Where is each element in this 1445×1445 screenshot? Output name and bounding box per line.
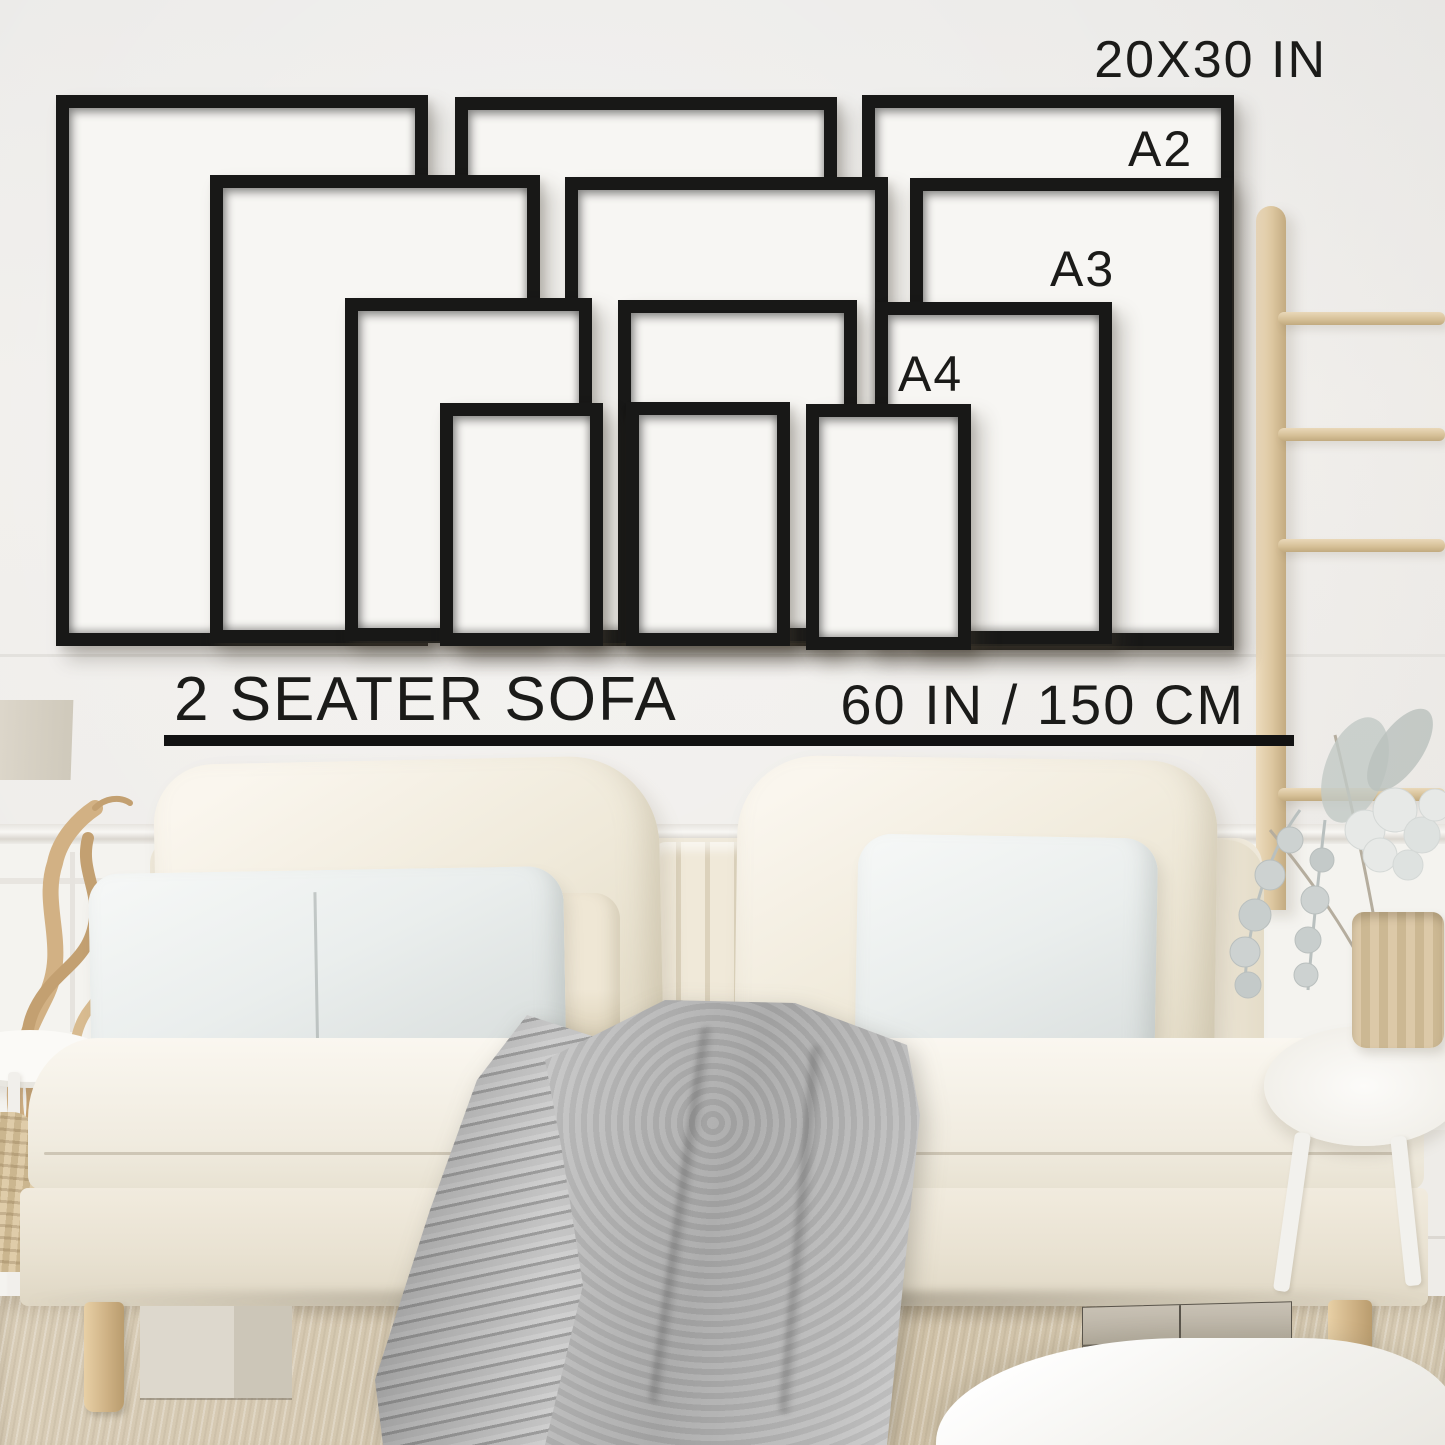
- frame-a4-right: [806, 404, 971, 650]
- wall-panel-line: [0, 654, 1445, 657]
- sofa-leg-left: [84, 1302, 124, 1412]
- ribbed-vase: [1352, 912, 1444, 1048]
- label-size-a2: A2: [1128, 120, 1193, 178]
- table-lamp-shade: [0, 700, 73, 780]
- frame-a4-middle: [626, 402, 790, 646]
- ladder-rung: [1278, 428, 1445, 441]
- knit-throw-blanket: [375, 985, 920, 1445]
- storage-box-white: [140, 1306, 292, 1398]
- ladder-rung: [1278, 539, 1445, 552]
- label-size-20x30: 20X30 IN: [1094, 30, 1327, 90]
- sofa-label: 2 SEATER SOFA: [174, 664, 678, 735]
- label-size-a4: A4: [898, 345, 963, 403]
- box-seam: [1179, 1305, 1181, 1342]
- frame-a4-left: [440, 403, 603, 646]
- ladder-rung: [1278, 312, 1445, 325]
- product-size-guide-image: 20X30 IN A2 A3 A4 2 SEATER SOFA 60 IN / …: [0, 0, 1445, 1445]
- label-size-a3: A3: [1050, 240, 1115, 298]
